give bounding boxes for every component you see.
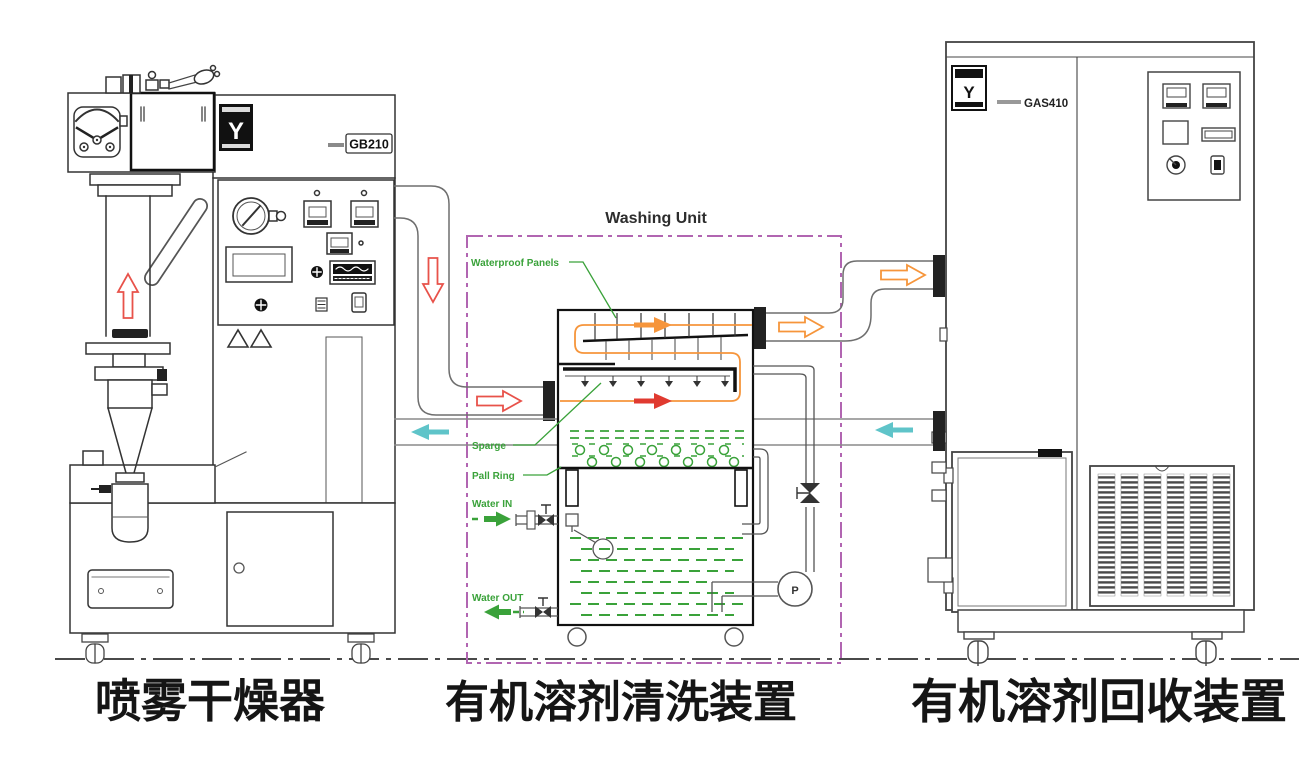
base-door [227,512,333,626]
label-waterproof-panels: Waterproof Panels [471,258,559,269]
recovery-door [952,452,1072,612]
cyan-return-arrow [411,424,449,440]
process-flow-diagram: Washing Unit [0,0,1299,780]
tower-caster [568,628,586,646]
caster [964,632,1222,666]
label-water-out: Water OUT [472,593,523,604]
flange [933,255,945,297]
drying-column [90,174,200,336]
label-pall-ring: Pall Ring [472,471,515,482]
flange [933,411,945,451]
captions: 喷雾干燥器 有机溶剂清洗装置 有机溶剂回收装置 [95,675,1287,728]
nozzle-assembly [106,66,220,94]
pump-letter: P [791,585,798,597]
orange-flow-arrow [881,265,925,285]
spray-dryer-unit: Y GB210 [68,66,395,664]
water-in-arrow [484,512,511,527]
caption-washing-unit: 有机溶剂清洗装置 [445,678,797,727]
display-window [226,247,292,282]
cyan-return-arrow [875,422,913,438]
brand-letter: Y [963,83,975,102]
flange [543,381,555,421]
duct-dryer-to-washer [394,186,543,415]
tower-caster [725,628,743,646]
collection-bottle [112,484,148,542]
caption-recovery-unit: 有机溶剂回收装置 [911,675,1287,728]
model-label-gas410: GAS410 [1024,98,1068,110]
orange-flow-arrow [779,317,823,337]
solvent-recovery-unit: Y GAS410 [928,42,1254,666]
washing-unit-title: Washing Unit [605,210,707,227]
door-latch [1038,449,1062,457]
washing-tower: P Waterproof Panels Sparge Pall Ring Wat… [471,258,820,646]
water-out-line [520,598,558,618]
water-out-arrow [484,605,511,620]
label-water-in: Water IN [472,499,512,510]
brand-letter: Y [228,118,244,145]
flange [754,307,766,349]
peristaltic-pump [74,107,127,157]
recovery-control-panel [1148,72,1240,200]
red-flow-arrow-down [423,258,443,302]
red-flow-arrow-right [477,391,521,411]
up-flow-arrow [118,274,138,318]
model-label-gb210: GB210 [349,138,389,152]
vent-grille [1090,466,1234,606]
caption-spray-dryer: 喷雾干燥器 [95,675,326,727]
label-sparge: Sparge [472,441,506,452]
diagram-canvas: Washing Unit [0,0,1299,780]
rocker-switch [352,293,366,312]
